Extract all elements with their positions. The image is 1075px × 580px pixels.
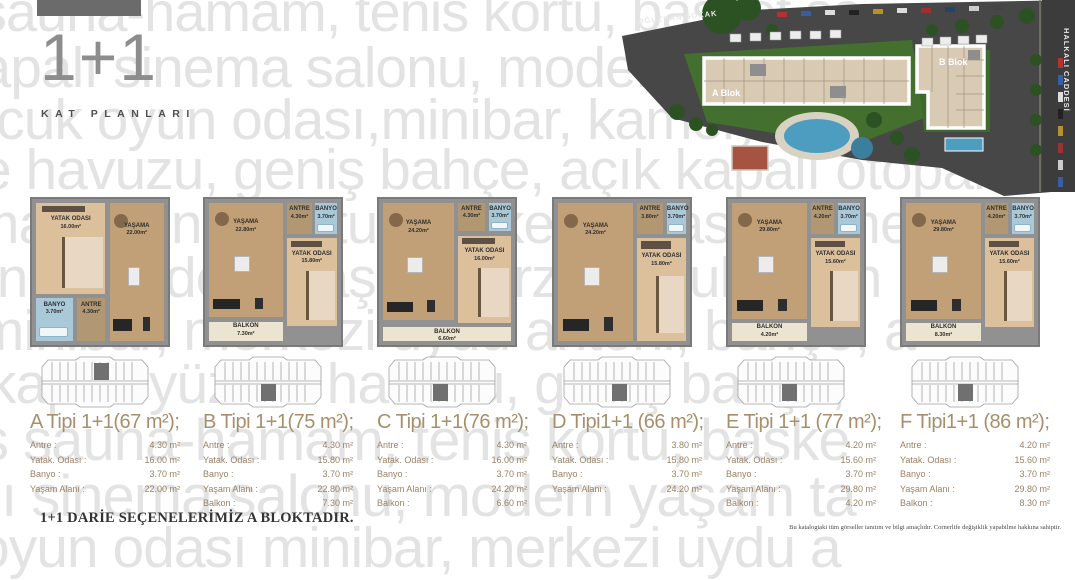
room-label: YATAK ODASI16.00m² — [36, 216, 105, 231]
spec-value: 15.80 m² — [317, 455, 353, 465]
spec-value: 15.60 m² — [840, 455, 876, 465]
spec-value: 3.80 m² — [671, 440, 702, 450]
bed-furniture — [830, 271, 858, 321]
room-label: YATAK ODASI15.60m² — [811, 251, 860, 266]
room-label: BANYO3.70m² — [1012, 206, 1034, 221]
plan-title-D: D Tipi1+1 (66 m²); — [552, 411, 704, 434]
spec-value: 24.20 m² — [491, 484, 527, 494]
spec-label: Yaşam Alanı : — [30, 484, 85, 494]
room-area: 7.30m² — [209, 331, 282, 338]
tub-furniture — [317, 224, 334, 231]
spec-table-E: Antre :4.20 m²Yatak. Odası :15.60 m²Bany… — [726, 440, 878, 508]
room-hall: ANTRE4.30m² — [458, 203, 485, 231]
room-area: 29.80m² — [906, 227, 981, 234]
floor-plan-D: YAŞAMA24.20m²ANTRE3.80m²BANYO3.70m²YATAK… — [552, 197, 692, 347]
plan-card-D: YAŞAMA24.20m²ANTRE3.80m²BANYO3.70m²YATAK… — [552, 197, 704, 494]
spec-label: Banyo : — [30, 469, 61, 479]
spec-label: Antre : — [203, 440, 230, 450]
spec-value: 3.70 m² — [322, 469, 353, 479]
spec-row: Yatak. Odası :15.80 m² — [203, 455, 353, 465]
room-name: BANYO — [838, 206, 860, 214]
floor-plan-F: YAŞAMA29.80m²ANTRE4.20m²BANYO3.70m²YATAK… — [900, 197, 1040, 347]
spec-value: 8.30 m² — [1019, 498, 1050, 508]
room-label: YAŞAMA24.20m² — [558, 223, 633, 238]
room-bath: BANYO3.70m² — [667, 203, 686, 234]
room-label: ANTRE4.20m² — [811, 206, 834, 221]
room-name: ANTRE — [985, 206, 1008, 214]
room-area: 3.70m² — [36, 309, 73, 316]
wardrobe-furniture — [42, 206, 85, 212]
watermark-text: oyun odası minibar, merkezi uydu a — [0, 520, 841, 577]
room-label: YATAK ODASI16.00m² — [458, 248, 511, 263]
bed-furniture — [306, 271, 335, 320]
block-b-label: B Blok — [939, 57, 968, 67]
spec-value: 15.60 m² — [1014, 455, 1050, 465]
spec-label: Yaşam Alanı : — [726, 484, 781, 494]
key-plan-svg — [36, 355, 154, 409]
page-title: 1+1 — [40, 24, 158, 90]
room-label: BALKON8.30m² — [906, 324, 981, 339]
spec-label: Yatak. Odası : — [726, 455, 782, 465]
table-furniture — [128, 267, 140, 286]
room-balcony: BALKON4.20m² — [732, 323, 807, 341]
room-bedroom: YATAK ODASI15.60m² — [811, 238, 860, 327]
room-label: YATAK ODASI15.60m² — [985, 251, 1034, 266]
tub-furniture — [840, 224, 857, 231]
floor-plan-E: YAŞAMA29.80m²ANTRE4.20m²BANYO3.70m²YATAK… — [726, 197, 866, 347]
wardrobe-furniture — [641, 241, 671, 248]
key-plan-thumbnail — [209, 355, 355, 411]
room-name: YAŞAMA — [383, 220, 454, 228]
room-area: 3.70m² — [489, 213, 511, 220]
plan-title-A: A Tipi 1+1(67 m²); — [30, 411, 182, 434]
room-bedroom: YATAK ODASI15.60m² — [985, 238, 1034, 327]
tub-furniture — [491, 222, 508, 229]
room-name: ANTRE — [287, 206, 313, 214]
room-label: YATAK ODASI15.80m² — [637, 253, 686, 268]
room-area: 4.20m² — [985, 214, 1008, 221]
disclaimer-text: Bu katalogtaki tüm görseller tanıtım ve … — [789, 524, 1061, 531]
room-name: ANTRE — [811, 206, 834, 214]
spec-label: Yaşam Alanı : — [900, 484, 955, 494]
room-area: 3.70m² — [315, 214, 337, 221]
spec-row: Antre :4.30 m² — [203, 440, 353, 450]
room-bath: BANYO3.70m² — [489, 203, 511, 231]
spec-value: 29.80 m² — [1014, 484, 1050, 494]
room-hall: ANTRE4.30m² — [287, 203, 313, 234]
room-living: YAŞAMA24.20m² — [383, 203, 454, 320]
spec-value: 4.30 m² — [496, 440, 527, 450]
room-area: 3.70m² — [667, 214, 686, 221]
spec-value: 29.80 m² — [840, 484, 876, 494]
room-living: YAŞAMA29.80m² — [906, 203, 981, 318]
room-hall: ANTRE4.20m² — [811, 203, 834, 234]
spec-row: Banyo :3.70 m² — [726, 469, 876, 479]
spec-value: 7.30 m² — [322, 498, 353, 508]
spec-row: Yatak. Odası :15.60 m² — [726, 455, 876, 465]
wardrobe-furniture — [815, 241, 845, 247]
room-area: 6.60m² — [383, 336, 511, 343]
room-area: 24.20m² — [383, 228, 454, 235]
key-plan-svg — [732, 355, 850, 409]
table-furniture — [932, 256, 948, 272]
spec-value: 3.70 m² — [1019, 469, 1050, 479]
spec-value: 4.20 m² — [1019, 440, 1050, 450]
room-name: BANYO — [315, 206, 337, 214]
key-plan-svg — [906, 355, 1024, 409]
table-furniture — [584, 267, 600, 286]
spec-label: Yatak. Odası : — [377, 455, 433, 465]
spec-table-D: Antre :3.80 m²Yatak. Odası :15.80 m²Bany… — [552, 440, 704, 494]
room-name: YATAK ODASI — [985, 251, 1034, 259]
b-block-pool — [945, 138, 983, 151]
room-label: BANYO3.70m² — [838, 206, 860, 221]
key-plan-thumbnail — [383, 355, 529, 411]
room-label: ANTRE4.20m² — [985, 206, 1008, 221]
room-area: 4.30m² — [287, 214, 313, 221]
room-area: 22.00m² — [110, 230, 164, 237]
room-area: 22.80m² — [209, 227, 282, 234]
spec-row: Antre :4.30 m² — [30, 440, 180, 450]
spec-row: Balkon :7.30 m² — [203, 498, 353, 508]
spec-label: Yatak. Odası : — [30, 455, 86, 465]
room-area: 8.30m² — [906, 332, 981, 339]
spec-value: 16.00 m² — [144, 455, 180, 465]
room-area: 15.80m² — [287, 258, 337, 265]
sofa-furniture — [911, 300, 938, 310]
wardrobe-furniture — [462, 238, 495, 244]
spec-row: Banyo :3.70 m² — [377, 469, 527, 479]
sport-court — [732, 146, 768, 170]
bed-furniture — [656, 276, 684, 333]
room-label: ANTRE4.30m² — [458, 206, 485, 221]
spec-label: Yatak. Odası : — [552, 455, 608, 465]
room-balcony: BALKON7.30m² — [209, 322, 282, 341]
room-bedroom: YATAK ODASI16.00m² — [458, 236, 511, 324]
plan-title-B: B Tipi 1+1(75 m²); — [203, 411, 355, 434]
spec-value: 3.70 m² — [845, 469, 876, 479]
spec-row: Antre :4.30 m² — [377, 440, 527, 450]
room-area: 15.60m² — [985, 259, 1034, 266]
room-area: 16.00m² — [36, 224, 105, 231]
room-label: BALKON6.60m² — [383, 329, 511, 344]
room-label: BALKON7.30m² — [209, 323, 282, 338]
spec-value: 22.00 m² — [144, 484, 180, 494]
plan-card-F: YAŞAMA29.80m²ANTRE4.20m²BANYO3.70m²YATAK… — [900, 197, 1052, 508]
room-area: 15.80m² — [637, 261, 686, 268]
spec-label: Balkon : — [377, 498, 410, 508]
room-living: YAŞAMA22.00m² — [110, 203, 164, 340]
spec-label: Banyo : — [552, 469, 583, 479]
spec-table-F: Antre :4.20 m²Yatak. Odası :15.60 m²Bany… — [900, 440, 1052, 508]
spec-row: Yatak. Odası :15.80 m² — [552, 455, 702, 465]
spec-row: Banyo :3.70 m² — [900, 469, 1050, 479]
plan-title-C: C Tipi 1+1(76 m²); — [377, 411, 529, 434]
room-hall: ANTRE4.30m² — [77, 298, 106, 340]
room-label: YAŞAMA29.80m² — [906, 220, 981, 235]
spec-label: Antre : — [377, 440, 404, 450]
chair-furniture — [604, 317, 613, 331]
room-bath: BANYO3.70m² — [36, 298, 73, 340]
tub-furniture — [39, 327, 68, 337]
room-area: 16.00m² — [458, 256, 511, 263]
plan-card-E: YAŞAMA29.80m²ANTRE4.20m²BANYO3.70m²YATAK… — [726, 197, 878, 508]
spec-table-C: Antre :4.30 m²Yatak. Odası :16.00 m²Bany… — [377, 440, 529, 508]
spec-table-A: Antre :4.30 m²Yatak. Odası :16.00 m²Bany… — [30, 440, 182, 494]
key-plan-svg — [209, 355, 327, 409]
room-label: YAŞAMA29.80m² — [732, 220, 807, 235]
room-bath: BANYO3.70m² — [315, 203, 337, 234]
room-name: BANYO — [1012, 206, 1034, 214]
room-area: 24.20m² — [558, 230, 633, 237]
spec-label: Yaşam Alanı : — [377, 484, 432, 494]
spec-value: 3.70 m² — [671, 469, 702, 479]
room-name: YATAK ODASI — [458, 248, 511, 256]
spec-table-B: Antre :4.30 m²Yatak. Odası :15.80 m²Bany… — [203, 440, 355, 508]
spec-value: 4.20 m² — [845, 498, 876, 508]
room-label: YAŞAMA22.00m² — [110, 223, 164, 238]
room-label: ANTRE4.30m² — [287, 206, 313, 221]
page-subtitle: KAT PLANLARI — [41, 108, 196, 120]
room-bath: BANYO3.70m² — [838, 203, 860, 234]
wardrobe-furniture — [989, 241, 1019, 247]
key-plan-thumbnail — [36, 355, 182, 411]
spec-label: Antre : — [552, 440, 579, 450]
spec-value: 16.00 m² — [491, 455, 527, 465]
spec-row: Yaşam Alanı :29.80 m² — [900, 484, 1050, 494]
room-name: YATAK ODASI — [637, 253, 686, 261]
round-pool — [851, 137, 873, 159]
key-plan-thumbnail — [558, 355, 704, 411]
room-area: 4.30m² — [77, 309, 106, 316]
room-living: YAŞAMA22.80m² — [209, 203, 282, 317]
spec-label: Antre : — [726, 440, 753, 450]
room-area: 4.20m² — [732, 332, 807, 339]
spec-row: Antre :4.20 m² — [726, 440, 876, 450]
room-name: YATAK ODASI — [36, 216, 105, 224]
room-bedroom: YATAK ODASI15.80m² — [287, 238, 337, 326]
room-label: YAŞAMA22.80m² — [209, 219, 282, 234]
spec-label: Yaşam Alanı : — [552, 484, 607, 494]
spec-value: 4.20 m² — [845, 440, 876, 450]
tub-furniture — [1014, 224, 1031, 231]
plan-card-A: YATAK ODASI16.00m²YAŞAMA22.00m²BANYO3.70… — [30, 197, 182, 494]
spec-value: 3.70 m² — [149, 469, 180, 479]
floor-plan-B: YAŞAMA22.80m²ANTRE4.30m²BANYO3.70m²YATAK… — [203, 197, 343, 347]
sofa-furniture — [737, 300, 764, 310]
street-label-right: HALKALI CADDESİ — [1062, 28, 1071, 112]
room-name: ANTRE — [637, 206, 663, 214]
key-plan-thumbnail — [732, 355, 878, 411]
room-label: BANYO3.70m² — [667, 206, 686, 221]
room-area: 4.20m² — [811, 214, 834, 221]
plan-card-C: YAŞAMA24.20m²ANTRE4.30m²BANYO3.70m²YATAK… — [377, 197, 529, 508]
spec-label: Balkon : — [900, 498, 933, 508]
bed-furniture — [1004, 271, 1032, 321]
spec-row: Balkon :4.20 m² — [726, 498, 876, 508]
room-label: BALKON4.20m² — [732, 324, 807, 339]
spec-value: 6.60 m² — [496, 498, 527, 508]
chair-furniture — [778, 299, 787, 311]
plan-card-B: YAŞAMA22.80m²ANTRE4.30m²BANYO3.70m²YATAK… — [203, 197, 355, 508]
footer-note: 1+1 DARİE SEÇENELERİMİZ A BLOKTADIR. — [40, 510, 354, 527]
chair-furniture — [143, 317, 150, 331]
spec-label: Balkon : — [726, 498, 759, 508]
room-balcony: BALKON6.60m² — [383, 327, 511, 340]
spec-row: Antre :4.20 m² — [900, 440, 1050, 450]
spec-row: Antre :3.80 m² — [552, 440, 702, 450]
key-plan-svg — [558, 355, 676, 409]
spec-row: Yaşam Alanı :29.80 m² — [726, 484, 876, 494]
spec-value: 3.70 m² — [496, 469, 527, 479]
room-living: YAŞAMA29.80m² — [732, 203, 807, 318]
spec-value: 15.80 m² — [666, 455, 702, 465]
spec-label: Banyo : — [726, 469, 757, 479]
room-label: ANTRE4.30m² — [77, 302, 106, 317]
room-hall: ANTRE3.80m² — [637, 203, 663, 234]
room-bath: BANYO3.70m² — [1012, 203, 1034, 234]
block-a-label: A Blok — [712, 88, 741, 98]
room-balcony: BALKON8.30m² — [906, 323, 981, 341]
room-label: ANTRE3.80m² — [637, 206, 663, 221]
spec-row: Banyo :3.70 m² — [203, 469, 353, 479]
table-furniture — [407, 257, 423, 273]
tub-furniture — [668, 224, 683, 231]
spec-label: Yatak. Odası : — [900, 455, 956, 465]
site-plan: OĞUZHAN SOKAK HALKALI CADDESİ A Blok B B… — [612, 0, 1075, 196]
spec-label: Banyo : — [203, 469, 234, 479]
spec-row: Yatak. Odası :16.00 m² — [30, 455, 180, 465]
plan-title-F: F Tipi1+1 (86 m²); — [900, 411, 1052, 434]
bed-furniture — [478, 268, 509, 317]
room-area: 29.80m² — [732, 227, 807, 234]
room-label: YATAK ODASI15.80m² — [287, 251, 337, 266]
room-bedroom: YATAK ODASI15.80m² — [637, 238, 686, 340]
spec-label: Yatak. Odası : — [203, 455, 259, 465]
spec-row: Yaşam Alanı :24.20 m² — [552, 484, 702, 494]
spec-label: Antre : — [900, 440, 927, 450]
spec-value: 4.30 m² — [322, 440, 353, 450]
spec-label: Banyo : — [900, 469, 931, 479]
spec-row: Balkon :6.60 m² — [377, 498, 527, 508]
spec-row: Yaşam Alanı :22.00 m² — [30, 484, 180, 494]
spec-label: Banyo : — [377, 469, 408, 479]
room-area: 4.30m² — [458, 213, 485, 220]
bed-furniture — [62, 237, 102, 288]
room-name: YAŞAMA — [209, 219, 282, 227]
floor-plan-C: YAŞAMA24.20m²ANTRE4.30m²BANYO3.70m²YATAK… — [377, 197, 517, 347]
room-hall: ANTRE4.20m² — [985, 203, 1008, 234]
spec-row: Yaşam Alanı :24.20 m² — [377, 484, 527, 494]
room-living: YAŞAMA24.20m² — [558, 203, 633, 340]
chair-furniture — [427, 300, 435, 312]
room-label: BANYO3.70m² — [489, 206, 511, 221]
sofa-furniture — [113, 319, 133, 331]
room-label: YAŞAMA24.20m² — [383, 220, 454, 235]
spec-row: Yatak. Odası :16.00 m² — [377, 455, 527, 465]
sofa-furniture — [213, 299, 239, 309]
main-pool — [784, 119, 850, 153]
chair-furniture — [952, 299, 961, 311]
spec-value: 22.80 m² — [317, 484, 353, 494]
chair-furniture — [255, 298, 264, 309]
table-furniture — [758, 256, 774, 272]
spec-label: Balkon : — [203, 498, 236, 508]
sofa-furniture — [387, 302, 412, 313]
room-name: YATAK ODASI — [811, 251, 860, 259]
spec-row: Yaşam Alanı :22.80 m² — [203, 484, 353, 494]
floor-plan-A: YATAK ODASI16.00m²YAŞAMA22.00m²BANYO3.70… — [30, 197, 170, 347]
room-label: BANYO3.70m² — [315, 206, 337, 221]
room-area: 15.60m² — [811, 259, 860, 266]
room-area: 3.80m² — [637, 214, 663, 221]
logo-block — [37, 0, 141, 16]
plan-title-E: E Tipi 1+1 (77 m²); — [726, 411, 878, 434]
spec-row: Yatak. Odası :15.60 m² — [900, 455, 1050, 465]
spec-value: 24.20 m² — [666, 484, 702, 494]
spec-label: Antre : — [30, 440, 57, 450]
room-label: BANYO3.70m² — [36, 302, 73, 317]
room-area: 3.70m² — [1012, 214, 1034, 221]
spec-row: Banyo :3.70 m² — [552, 469, 702, 479]
spec-row: Balkon :8.30 m² — [900, 498, 1050, 508]
key-plan-svg — [383, 355, 501, 409]
key-plan-thumbnail — [906, 355, 1052, 411]
room-name: BANYO — [667, 206, 686, 214]
table-furniture — [234, 256, 250, 272]
sofa-furniture — [563, 319, 590, 331]
spec-row: Banyo :3.70 m² — [30, 469, 180, 479]
room-name: BALKON — [209, 323, 282, 331]
spec-value: 4.30 m² — [149, 440, 180, 450]
room-area: 3.70m² — [838, 214, 860, 221]
wardrobe-furniture — [291, 241, 322, 247]
spec-label: Yaşam Alanı : — [203, 484, 258, 494]
room-bedroom: YATAK ODASI16.00m² — [36, 203, 105, 294]
